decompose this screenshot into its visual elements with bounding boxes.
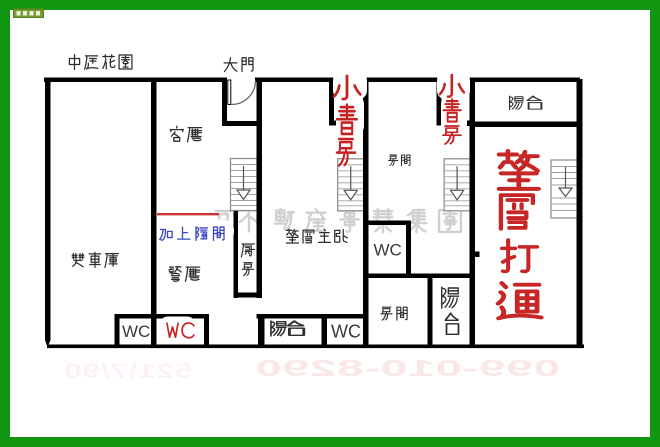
svg-text:521\7/90: 521\7/90 [63, 359, 192, 383]
svg-text:099-010-8290: 099-010-8290 [255, 355, 560, 381]
svg-text:WC: WC [122, 322, 150, 341]
svg-text:WC: WC [331, 322, 361, 342]
svg-text:WC: WC [374, 241, 402, 260]
